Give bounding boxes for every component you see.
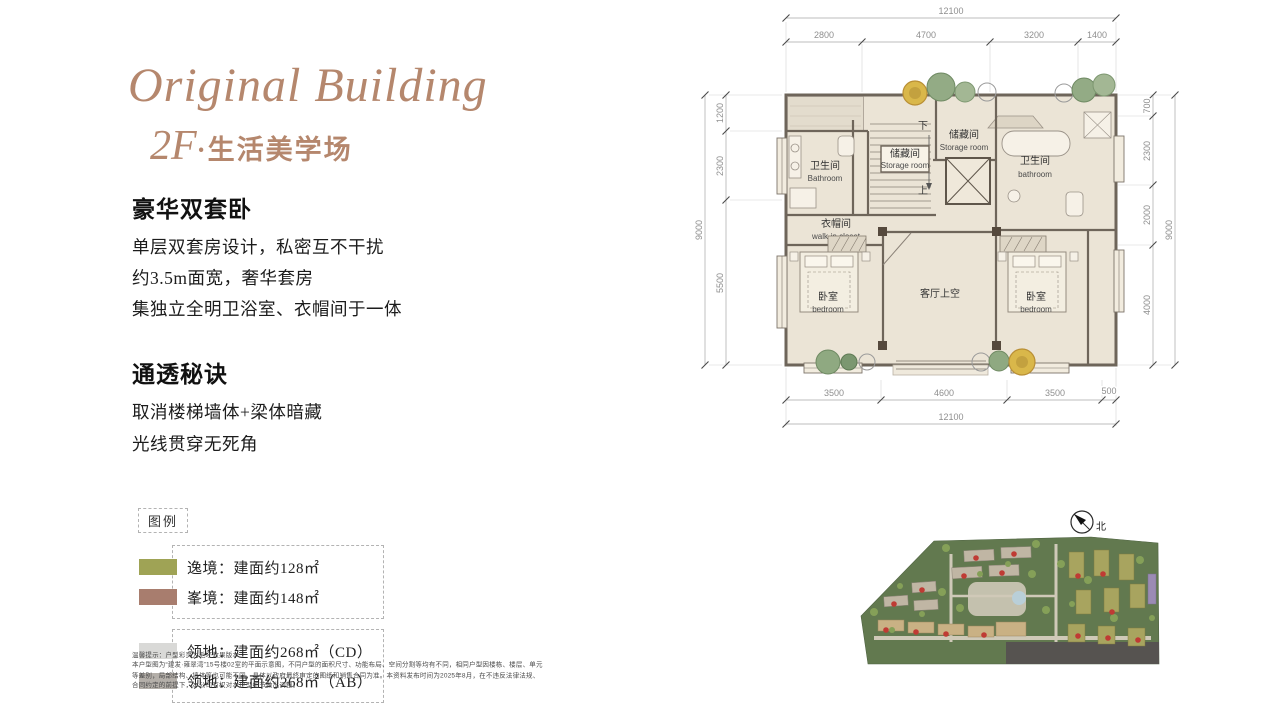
- dim-label: 3200: [1024, 30, 1044, 40]
- feature-heading-2: 通透秘诀: [132, 355, 562, 389]
- bedroom-right: 卧室 bedroom: [998, 252, 1078, 314]
- dim-label: 2000: [1142, 205, 1152, 225]
- disclaimer-line: 温馨提示：户型彩页为毛坯效果版本: [132, 650, 549, 660]
- room-label-bathroom-left-cn: 卫生间: [810, 159, 840, 172]
- room-label-closet-cn: 衣帽间: [821, 217, 851, 230]
- disclaimer-line: 合同约定的前提下，本公司有权对本户型细节做出调整。: [132, 680, 549, 690]
- site-map: [856, 534, 1166, 679]
- dim-label: 1200: [715, 103, 725, 123]
- legend-swatch-brown: [139, 589, 177, 605]
- elevator: [946, 158, 990, 204]
- room-label-storage-stairs-en: Storage room: [881, 161, 930, 170]
- feature-line: 集独立全明卫浴室、衣帽间于一体: [132, 294, 562, 325]
- feature-heading-1: 豪华双套卧: [132, 190, 562, 224]
- feature-section-2: 通透秘诀 取消楼梯墙体+梁体暗藏 光线贯穿无死角: [132, 355, 562, 459]
- legend-item: 逸境：建面约128㎡: [187, 552, 369, 582]
- bedroom-left: 卧室 bedroom: [790, 252, 870, 314]
- room-label-storage-stairs-cn: 储藏间: [890, 147, 920, 160]
- dim-label: 700: [1142, 98, 1152, 113]
- subtitle-floor-number: 2F: [150, 122, 197, 170]
- legend-swatch-olive: [139, 559, 177, 575]
- north-label: 北: [1096, 521, 1106, 533]
- disclaimer-line: 等差别，局部结构、墙体等也可能不同，具体以政府最终审定的图纸和销售合同为准。本资…: [132, 670, 549, 680]
- dim-label: 4000: [1142, 295, 1152, 315]
- stair-down-label: 下: [918, 121, 928, 132]
- feature-line: 约3.5m面宽，奢华套房: [132, 263, 562, 294]
- dim-label: 12100: [938, 412, 963, 422]
- tree-icon: [1093, 74, 1115, 96]
- page: { "header": { "title": "Original Buildin…: [0, 0, 1285, 706]
- tree-icon: [927, 73, 955, 101]
- legend-label: 逸境：建面约128㎡: [187, 557, 320, 578]
- room-label-bathroom-right-cn: 卫生间: [1020, 154, 1050, 167]
- tree-icon: [841, 354, 857, 370]
- stair-up-label: 上: [918, 185, 928, 197]
- feature-copy: 豪华双套卧 单层双套房设计，私密互不干扰 约3.5m面宽，奢华套房 集独立全明卫…: [132, 190, 562, 460]
- disclaimer-line: 本户型图为“建发·雍翠湾”15号楼02室的平面示意图，不同户型的面积尺寸、功能布…: [132, 660, 549, 670]
- legend-group-1: 逸境：建面约128㎡ 峯境：建面约148㎡: [172, 545, 384, 619]
- tree-icon: [1009, 349, 1035, 375]
- tree-icon: [816, 350, 840, 374]
- dim-label: 9000: [694, 220, 704, 240]
- dim-label: 9000: [1164, 220, 1174, 240]
- dim-label: 5500: [715, 273, 725, 293]
- feature-line: 光线贯穿无死角: [132, 429, 562, 460]
- dim-chain-left: 9000 1200 2300 5500: [694, 92, 730, 369]
- feature-line: 取消楼梯墙体+梁体暗藏: [132, 397, 562, 428]
- subtitle-text: ·生活美学场: [197, 128, 353, 167]
- dim-label: 500: [1101, 386, 1116, 396]
- dim-chain-bottom: 3500 4600 3500 500 12100: [783, 386, 1120, 428]
- room-label-bedroom-left-en: bedroom: [812, 305, 844, 314]
- site-pool: [1012, 591, 1026, 605]
- tree-icon: [903, 81, 927, 105]
- dim-label: 12100: [938, 6, 963, 16]
- dim-label: 4700: [916, 30, 936, 40]
- dim-chain-right: 700 2300 2000 4000 9000: [1142, 92, 1179, 369]
- page-title: Original Building: [128, 58, 488, 113]
- dim-label: 3500: [1045, 388, 1065, 398]
- room-label-bedroom-right-cn: 卧室: [1026, 290, 1046, 303]
- room-label-bedroom-left-cn: 卧室: [818, 290, 838, 303]
- dim-label: 3500: [824, 388, 844, 398]
- dim-chain-top: 12100 2800 4700 3200 1400: [783, 6, 1120, 46]
- tree-icon: [955, 82, 975, 102]
- dim-label: 4600: [934, 388, 954, 398]
- room-label-storage-top-en: Storage room: [940, 143, 989, 152]
- feature-line: 单层双套房设计，私密互不干扰: [132, 232, 562, 263]
- legend-label: 峯境：建面约148㎡: [187, 587, 320, 608]
- room-label-bathroom-right-en: bathroom: [1018, 170, 1052, 179]
- room-label-bathroom-left-en: Bathroom: [808, 174, 843, 183]
- dim-label: 2800: [814, 30, 834, 40]
- room-label-living-void: 客厅上空: [920, 287, 960, 300]
- room-label-storage-top-cn: 储藏间: [949, 128, 979, 141]
- disclaimer: 温馨提示：户型彩页为毛坯效果版本 本户型图为“建发·雍翠湾”15号楼02室的平面…: [132, 650, 549, 690]
- floor-plan: 12100 2800 4700 3200 1400 3500 4600 3500…: [678, 0, 1238, 452]
- tree-icon: [1072, 78, 1096, 102]
- dim-label: 1400: [1087, 30, 1107, 40]
- page-subtitle: 2F·生活美学场: [150, 122, 353, 170]
- legend-item: 峯境：建面约148㎡: [187, 582, 369, 612]
- feature-section-1: 豪华双套卧 单层双套房设计，私密互不干扰 约3.5m面宽，奢华套房 集独立全明卫…: [132, 190, 562, 325]
- dim-label: 2300: [1142, 141, 1152, 161]
- compass-needle-head: [1074, 514, 1086, 525]
- tree-icon: [989, 351, 1009, 371]
- legend-title: 图例: [138, 508, 188, 533]
- room-label-bedroom-right-en: bedroom: [1020, 305, 1052, 314]
- dim-label: 2300: [715, 156, 725, 176]
